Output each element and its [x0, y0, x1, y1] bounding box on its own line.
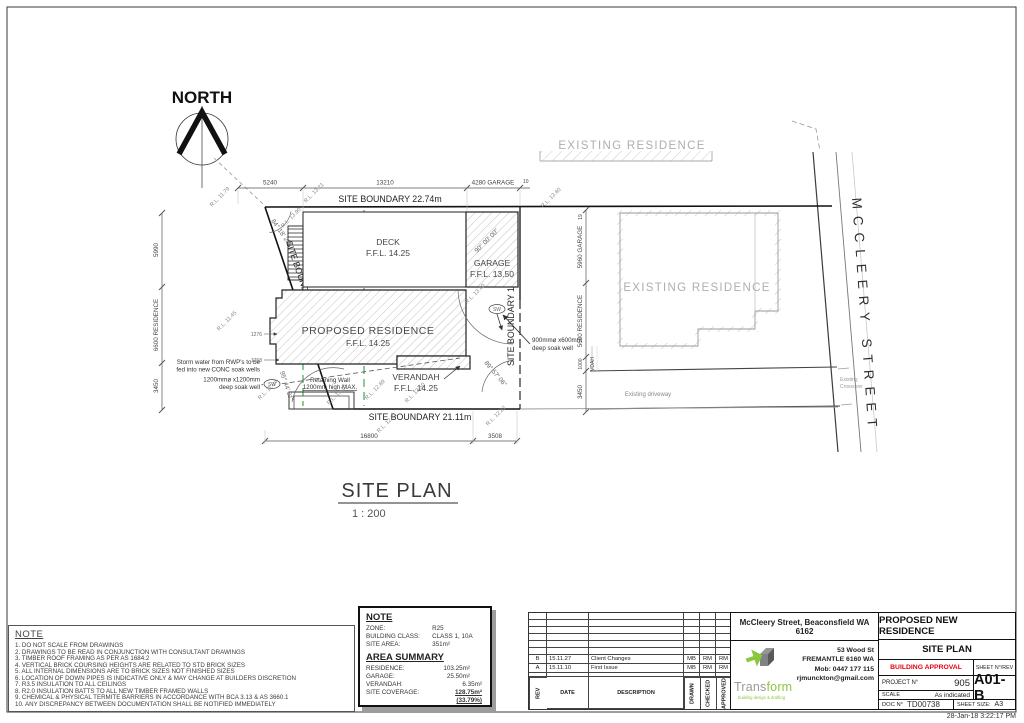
deck-stairs — [288, 226, 303, 280]
rl-i: R.L. 12.69 — [364, 379, 386, 401]
dim-right-3: 5600 RESIDENCE — [577, 295, 584, 348]
figure-title: SITE PLAN 1 : 200 — [338, 480, 458, 520]
notes-panel: NOTE 1. DO NOT SCALE FROM DRAWINGS 2. DR… — [8, 625, 355, 712]
project-number-value: 905 — [954, 678, 970, 689]
verandah-label: VERANDAH — [392, 372, 439, 382]
boundary-bottom-label: SITE BOUNDARY 21.11m — [369, 412, 472, 422]
revision-row-date: 15.11.27 — [547, 655, 589, 664]
angle-se-label: 89° 57' 06" — [482, 359, 508, 388]
scale-label: SCALE — [882, 692, 900, 698]
north-label: NORTH — [172, 88, 232, 107]
revision-row-drawn: MB — [684, 664, 700, 673]
company-address-line: FREMANTLE 6160 WA — [797, 655, 874, 664]
area-summary-box: NOTE ZONE:R25 BUILDING CLASS:CLASS 1, 10… — [358, 606, 492, 707]
company-name-part-1: Trans — [734, 680, 767, 694]
note-item: 10. ANY DISCREPANCY BETWEEN DOCUMENTATIO… — [15, 702, 348, 709]
verandah: VERANDAH F.F.L. 14.25 — [392, 356, 470, 393]
title-block: McCleery Street, Beaconsfield WA 6162 Tr… — [730, 612, 1016, 710]
revision-row-checked: RM — [700, 664, 716, 673]
company-name: Transform — [734, 680, 792, 694]
residence-area-value: 103.25m² — [432, 665, 484, 673]
soak-well-900-note-2: deep soak well — [532, 345, 573, 352]
dim-left-3: 3450 — [153, 379, 160, 394]
revision-row-checked: RM — [700, 655, 716, 664]
soak-well-sw-label-2: SW — [493, 307, 501, 313]
existing-driveway-label: Existing driveway — [625, 392, 671, 398]
revision-row-description: First Issue — [589, 664, 684, 673]
revision-row-rev: B — [529, 655, 547, 664]
verandah-area-label: VERANDAH: — [366, 681, 432, 689]
residence-ffl-label: F.F.L. 14.25 — [346, 338, 390, 348]
rl-e: R.L. 11.45 — [216, 310, 238, 332]
sheet-title: SITE PLAN — [879, 640, 1015, 660]
dim-left-1: 5990 — [153, 243, 160, 258]
company-email: rjmunckton@gmail.com — [797, 674, 874, 683]
sheet-size-value: A3 — [995, 701, 1004, 708]
doc-number-label: DOC N° — [882, 702, 903, 708]
revision-col-rev: REV — [529, 677, 547, 709]
zone-label: ZONE: — [366, 625, 432, 633]
garage-label: GARAGE — [474, 258, 511, 268]
revision-row-drawn: MB — [684, 655, 700, 664]
dim-left-2: 6600 RESIDENCE — [153, 299, 160, 352]
residence-label: PROPOSED RESIDENCE — [302, 325, 435, 337]
street: MCCLEERY STREET Existing Crossover — [792, 121, 880, 452]
retaining-wall-label-1: Retaining Wall — [310, 377, 350, 384]
figure-title-label: SITE PLAN — [341, 480, 452, 502]
rl-a: R.L. 11.79 — [209, 186, 231, 208]
storm-water-note-2: fed into new CONC soak wells — [176, 367, 260, 374]
notes-title: NOTE — [15, 629, 348, 640]
project-title: PROPOSED NEW RESIDENCE — [879, 613, 1015, 640]
revision-col-date: DATE — [547, 677, 589, 709]
sheet-number: A01-B — [974, 676, 1015, 699]
existing-crossover-label-1: Existing — [840, 377, 858, 383]
building-class-label: BUILDING CLASS: — [366, 633, 432, 641]
doc-number-value: TD00738 — [907, 700, 940, 709]
drawing-sheet: NORTH EXISTING RESIDENCE MCCLEERY STREET… — [0, 0, 1024, 723]
dim-right-5: VDAH — [590, 357, 596, 371]
deck-label: DECK — [376, 237, 400, 247]
verandah-area-value: 6.35m² — [432, 681, 484, 689]
dim-bottom-2: 3508 — [488, 433, 503, 440]
existing-residence-right: EXISTING RESIDENCE — [620, 213, 778, 346]
site-coverage-label: SITE COVERAGE: — [366, 689, 432, 705]
soak-well-1200-note-2: deep soak well — [219, 384, 260, 391]
deck-ffl-label: F.F.L. 14.25 — [366, 248, 410, 258]
north-arrow: NORTH — [172, 88, 263, 204]
revision-col-checked: CHECKED — [700, 677, 716, 709]
dim-right-2: 5960 GARAGE — [577, 226, 584, 269]
company-address: 53 Wood St FREMANTLE 6160 WA Mob: 0447 1… — [797, 644, 874, 706]
retaining-wall-label-2: 1200mm high MAX. — [303, 384, 358, 391]
transform-logo-icon — [742, 644, 782, 676]
dim-right-1: 19 — [578, 214, 584, 220]
street-name-label: MCCLEERY STREET — [849, 197, 880, 434]
company-logo: Transform building design & drafting — [734, 644, 797, 706]
dim-top-4: 10 — [523, 179, 529, 185]
revision-row-rev: A — [529, 664, 547, 673]
dim-top-2: 13210 — [376, 180, 394, 187]
proposed-residence: PROPOSED RESIDENCE F.F.L. 14.25 — [270, 290, 466, 364]
boundary-top-label: SITE BOUNDARY 22.74m — [338, 194, 441, 204]
existing-crossover-label-2: Crossover — [840, 384, 863, 390]
dim-right-4: 1000 — [578, 358, 584, 369]
site-coverage-value: 128.75m² (33.79%) — [432, 689, 484, 705]
residence-area-label: RESIDENCE: — [366, 665, 432, 673]
deck: DECK F.F.L. 14.25 — [303, 212, 466, 287]
company-address-line: 53 Wood St — [797, 646, 874, 655]
rl-b: R.L. 13.21 — [303, 182, 325, 204]
soak-well-900-note-1: 900mmø x600mm — [532, 337, 582, 344]
company-tagline: building design & drafting — [738, 695, 785, 700]
approval-status: BUILDING APPROVAL — [879, 660, 974, 675]
summary-note-title: NOTE — [366, 612, 484, 623]
revision-row-date: 15.11.10 — [547, 664, 589, 673]
site-area-label: SITE AREA: — [366, 641, 432, 649]
revision-row-description: Client Changes — [589, 655, 684, 664]
company-name-part-2: form — [767, 680, 793, 694]
storm-water-note-1: Storm water from RWP's to be — [177, 359, 261, 366]
project-number-label: PROJECT N° — [882, 680, 918, 686]
zone-value: R25 — [432, 625, 484, 633]
dim-right-6: 3450 — [577, 385, 584, 400]
scale-value: As indicated — [935, 692, 970, 699]
existing-driveway: Existing driveway — [590, 346, 840, 409]
garage: GARAGE F.F.L. 13.50 90° 00' 00" — [466, 212, 518, 287]
figure-scale-label: 1 : 200 — [352, 508, 386, 520]
garage-ffl-label: F.F.L. 13.50 — [470, 269, 514, 279]
garage-area-value: 25.50m² — [432, 673, 484, 681]
company-phone: Mob: 0447 177 115 — [797, 665, 874, 674]
soak-well-1200-note-1: 1200mmø x1200mm — [203, 377, 260, 384]
site-area-value: 351m² — [432, 641, 484, 649]
dim-notch-1: 1276 — [251, 332, 262, 338]
revision-col-description: DESCRIPTION — [589, 677, 684, 709]
dim-top-1: 5240 — [263, 180, 278, 187]
building-class-value: CLASS 1, 10A — [432, 633, 484, 641]
garage-area-label: GARAGE: — [366, 673, 432, 681]
angle-sw-label: 95° 44' 31" — [278, 370, 295, 402]
area-summary-title: AREA SUMMARY — [366, 652, 484, 663]
existing-residence-top: EXISTING RESIDENCE — [540, 140, 712, 161]
dim-bottom-1: 16800 — [360, 433, 378, 440]
dim-notch-2: 1768 — [251, 358, 262, 364]
existing-residence-right-label: EXISTING RESIDENCE — [623, 282, 770, 294]
site-address: McCleery Street, Beaconsfield WA 6162 — [731, 613, 878, 641]
existing-residence-top-label: EXISTING RESIDENCE — [558, 140, 705, 152]
revision-table: B 15.11.27 Client Changes MB RM RM A 15.… — [528, 612, 731, 710]
sheet-size-label: SHEET SIZE: — [957, 702, 991, 708]
print-timestamp: 28-Jan-18 3:22:17 PM — [880, 713, 1016, 720]
dim-top-3: 4280 GARAGE — [472, 180, 515, 187]
revision-col-drawn: DRAWN — [684, 677, 700, 709]
